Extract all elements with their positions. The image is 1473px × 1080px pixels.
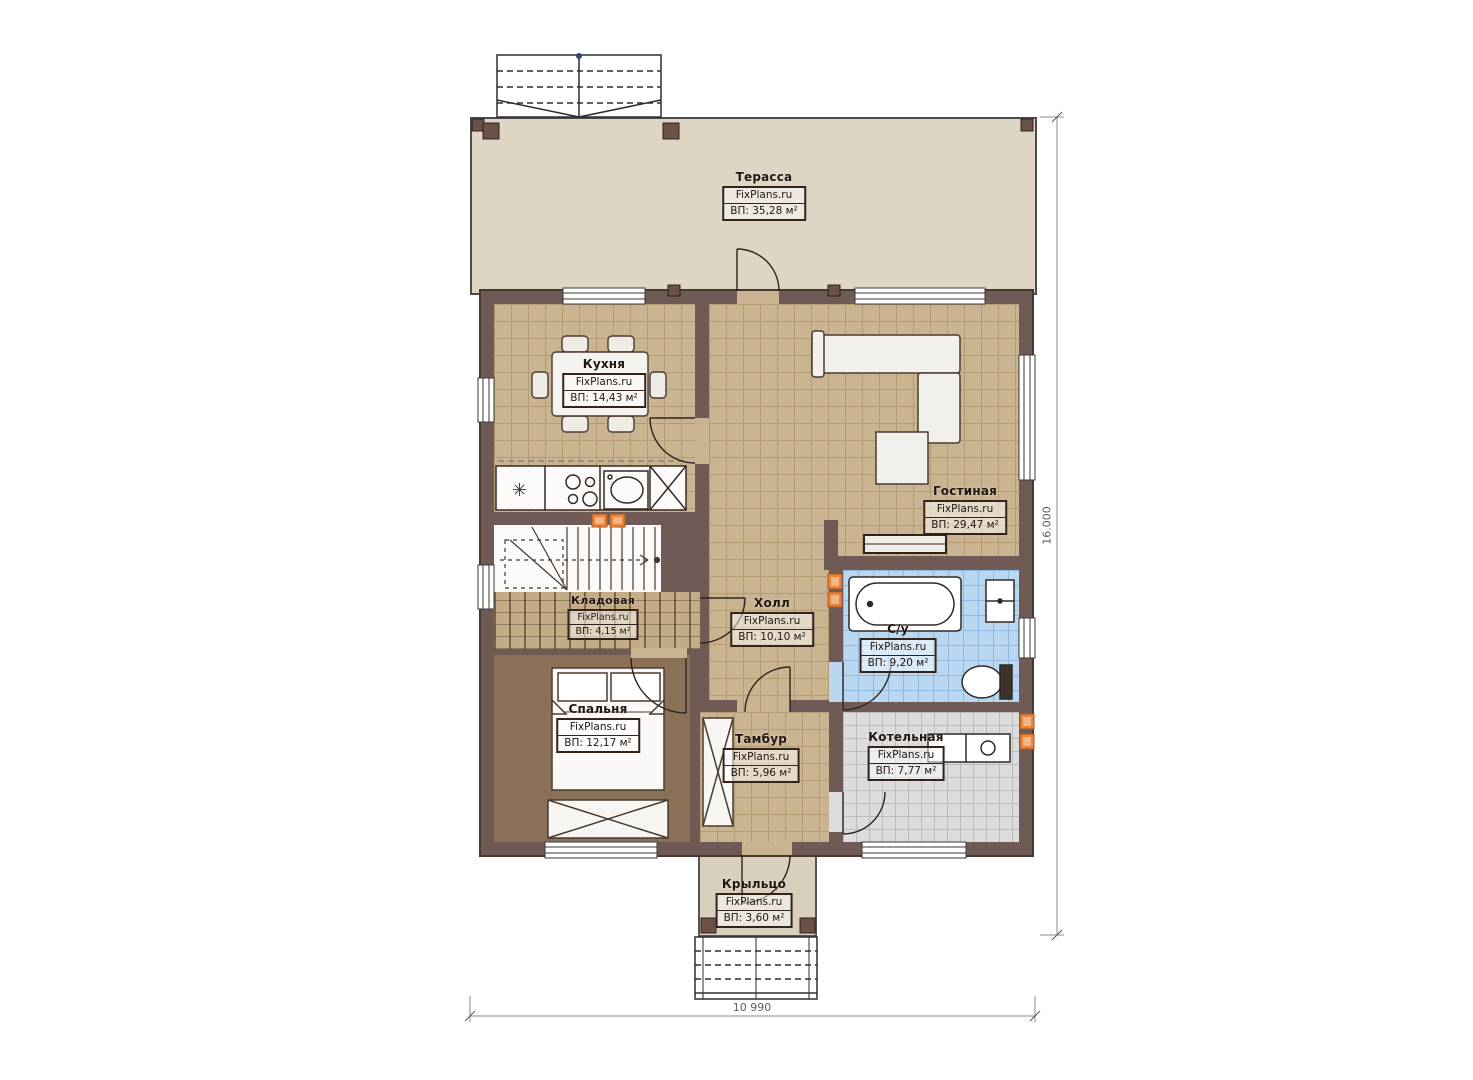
area-value: ВП: 3,60 м²: [718, 910, 791, 926]
area-value: ВП: 4,15 м²: [569, 624, 636, 638]
area-value: ВП: 5,96 м²: [725, 765, 798, 781]
terrace-stairs: [497, 53, 661, 117]
room-kitchen-floor: [494, 304, 695, 512]
floor-plan: ✳: [0, 0, 1473, 1080]
dimension-height: 16.000: [1041, 501, 1054, 551]
room-label-bathroom: С/у FixPlans.ru ВП: 9,20 м²: [860, 622, 937, 673]
kitchen-door-opening: [695, 418, 709, 464]
watermark: FixPlans.ru: [724, 188, 804, 203]
watermark: FixPlans.ru: [862, 640, 935, 655]
porch-door-opening: [742, 842, 792, 855]
watermark: FixPlans.ru: [564, 375, 644, 390]
bathroom-door-opening: [829, 662, 843, 702]
wall-stub: [824, 520, 838, 570]
watermark: FixPlans.ru: [870, 748, 943, 763]
room-hall-floor: [709, 304, 829, 712]
room-label-boiler: Котельная FixPlans.ru ВП: 7,77 м²: [868, 730, 945, 781]
terrace-door-opening: [737, 291, 779, 304]
wall-stub: [700, 700, 737, 712]
area-value: ВП: 14,43 м²: [564, 390, 644, 406]
room-label-hall: Холл FixPlans.ru ВП: 10,10 м²: [730, 596, 814, 647]
room-label-porch: Крыльцо FixPlans.ru ВП: 3,60 м²: [716, 877, 793, 928]
room-label-bedroom: Спальня FixPlans.ru ВП: 12,17 м²: [556, 702, 640, 753]
dimension-width: 10 990: [733, 1001, 772, 1014]
watermark: FixPlans.ru: [725, 750, 798, 765]
area-value: ВП: 9,20 м²: [862, 655, 935, 671]
staircase-area: [494, 525, 661, 592]
area-value: ВП: 35,28 м²: [724, 203, 804, 219]
watermark: FixPlans.ru: [569, 611, 636, 624]
porch-stairs: [695, 937, 817, 999]
room-label-pantry: Кладовая FixPlans.ru ВП: 4,15 м²: [567, 594, 638, 640]
area-value: ВП: 10,10 м²: [732, 629, 812, 645]
watermark: FixPlans.ru: [558, 720, 638, 735]
room-label-kitchen: Кухня FixPlans.ru ВП: 14,43 м²: [562, 357, 646, 408]
watermark: FixPlans.ru: [925, 502, 1005, 517]
watermark: FixPlans.ru: [718, 895, 791, 910]
room-label-living: Гостиная FixPlans.ru ВП: 29,47 м²: [923, 484, 1007, 535]
area-value: ВП: 29,47 м²: [925, 517, 1005, 533]
bedroom-door-opening: [631, 648, 687, 658]
wall-stub: [790, 700, 829, 712]
room-label-terrace: Терасса FixPlans.ru ВП: 35,28 м²: [722, 170, 806, 221]
area-value: ВП: 7,77 м²: [870, 763, 943, 779]
boiler-door-opening: [829, 792, 843, 832]
area-value: ВП: 12,17 м²: [558, 735, 638, 751]
watermark: FixPlans.ru: [732, 614, 812, 629]
room-label-vestibule: Тамбур FixPlans.ru ВП: 5,96 м²: [723, 732, 800, 783]
